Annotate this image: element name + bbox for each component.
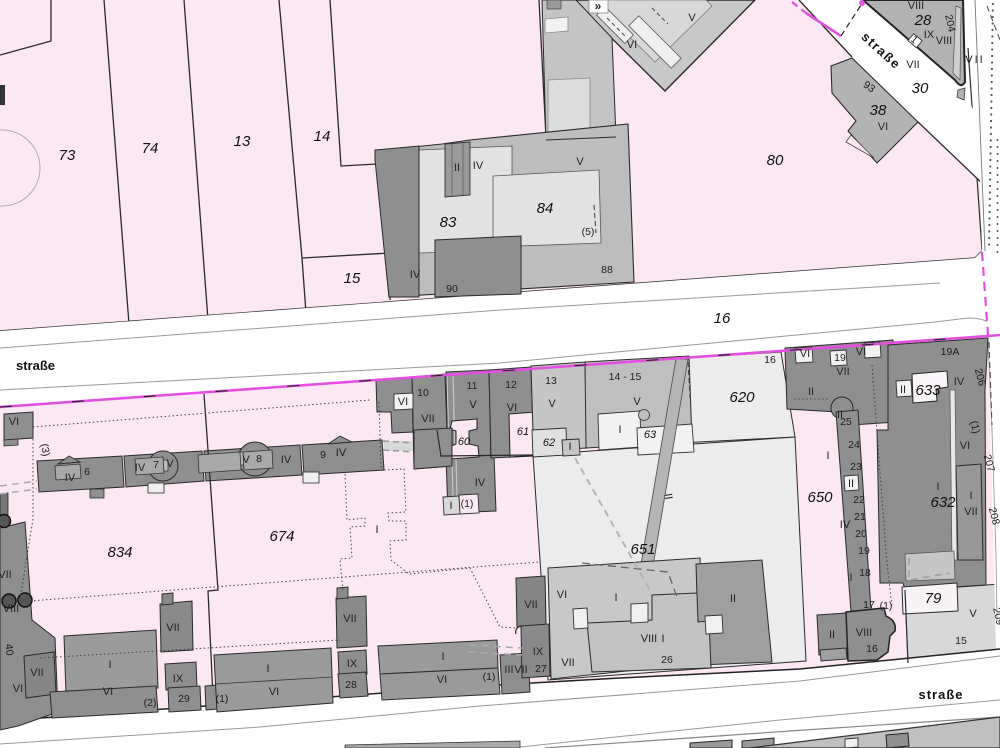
svg-text:VII: VII <box>524 599 537 611</box>
svg-text:19: 19 <box>834 352 846 364</box>
svg-text:13: 13 <box>545 375 557 387</box>
svg-text:63: 63 <box>644 429 657 441</box>
svg-text:10: 10 <box>417 387 429 399</box>
svg-text:80: 80 <box>767 152 784 169</box>
svg-text:20: 20 <box>855 528 867 540</box>
svg-text:VIII: VIII <box>3 603 20 615</box>
svg-text:15: 15 <box>955 635 967 647</box>
svg-text:(2): (2) <box>144 697 157 709</box>
svg-text:650: 650 <box>807 489 833 506</box>
svg-text:II: II <box>808 386 814 398</box>
svg-text:26: 26 <box>661 654 673 666</box>
svg-text:17: 17 <box>863 599 875 611</box>
svg-text:IV: IV <box>473 160 484 172</box>
svg-text:straße: straße <box>16 358 55 373</box>
svg-text:I: I <box>449 500 452 512</box>
svg-text:IX: IX <box>173 673 184 685</box>
svg-text:IX: IX <box>533 646 544 658</box>
svg-text:V: V <box>166 458 174 470</box>
svg-text:(1): (1) <box>461 498 474 510</box>
svg-text:»: » <box>595 0 602 13</box>
svg-text:III: III <box>504 664 513 676</box>
svg-text:83: 83 <box>440 214 457 231</box>
svg-text:II: II <box>848 478 854 490</box>
svg-text:84: 84 <box>537 200 554 217</box>
svg-text:I: I <box>849 572 852 584</box>
svg-text:6: 6 <box>84 466 90 478</box>
svg-text:651: 651 <box>630 541 655 558</box>
svg-text:V: V <box>576 156 584 168</box>
svg-text:11: 11 <box>467 380 478 392</box>
svg-text:IV: IV <box>336 447 347 459</box>
svg-text:VI: VI <box>437 674 447 686</box>
svg-text:I: I <box>969 490 972 502</box>
svg-text:22: 22 <box>853 494 865 506</box>
svg-text:79: 79 <box>925 590 942 607</box>
svg-text:834: 834 <box>107 544 132 561</box>
svg-text:V: V <box>969 608 977 620</box>
svg-text:(3): (3) <box>38 443 52 458</box>
svg-text:(1): (1) <box>483 671 496 683</box>
svg-text:VIII: VIII <box>936 35 953 47</box>
svg-text:I: I <box>661 633 664 645</box>
svg-text:VIII: VIII <box>908 0 925 12</box>
svg-text:633: 633 <box>915 382 941 399</box>
svg-text:VI: VI <box>960 440 970 452</box>
svg-text:IV: IV <box>65 472 76 484</box>
svg-text:VI: VI <box>878 121 888 133</box>
svg-text:II: II <box>454 162 460 174</box>
svg-text:VII: VII <box>965 54 984 66</box>
svg-text:VII: VII <box>906 59 919 71</box>
svg-text:674: 674 <box>269 528 294 545</box>
svg-text:VII: VII <box>514 664 527 676</box>
svg-text:62: 62 <box>543 437 555 449</box>
svg-text:VI: VI <box>398 396 408 408</box>
svg-text:VIII: VIII <box>641 633 658 645</box>
svg-text:I: I <box>375 524 378 536</box>
svg-text:VI: VI <box>103 686 113 698</box>
svg-text:12: 12 <box>505 379 517 391</box>
svg-text:14: 14 <box>314 128 331 145</box>
svg-text:VIII: VIII <box>856 627 873 639</box>
svg-text:13: 13 <box>234 133 251 150</box>
svg-text:40: 40 <box>3 643 16 656</box>
svg-text:II: II <box>730 593 736 605</box>
svg-text:I: I <box>266 663 269 675</box>
svg-text:IV: IV <box>410 269 421 281</box>
svg-text:(1): (1) <box>216 693 229 705</box>
svg-text:IV: IV <box>281 454 292 466</box>
svg-text:VII: VII <box>343 613 356 625</box>
svg-text:II: II <box>900 384 906 396</box>
svg-text:IV: IV <box>135 462 146 474</box>
svg-text:V: V <box>242 454 250 466</box>
svg-text:II: II <box>829 629 835 641</box>
svg-text:(5): (5) <box>582 226 595 238</box>
svg-text:VII: VII <box>30 667 43 679</box>
svg-text:15: 15 <box>344 270 361 287</box>
svg-text:VI: VI <box>800 348 810 360</box>
svg-text:IV: IV <box>954 376 965 388</box>
svg-text:(1): (1) <box>880 600 893 612</box>
svg-text:14 - 15: 14 - 15 <box>609 371 642 383</box>
svg-text:V: V <box>688 12 696 24</box>
svg-text:I: I <box>618 424 621 436</box>
svg-text:620: 620 <box>729 389 755 406</box>
svg-text:I: I <box>614 592 617 604</box>
svg-text:16: 16 <box>764 354 776 366</box>
svg-text:16: 16 <box>866 643 878 655</box>
svg-text:18: 18 <box>859 567 871 579</box>
svg-text:VII: VII <box>421 413 434 425</box>
svg-text:VI: VI <box>269 686 279 698</box>
svg-text:29: 29 <box>178 693 190 705</box>
svg-text:7: 7 <box>153 459 159 471</box>
svg-text:straße: straße <box>918 687 963 702</box>
svg-text:27: 27 <box>535 663 547 675</box>
svg-text:24: 24 <box>848 439 860 451</box>
svg-text:II: II <box>837 409 843 421</box>
svg-text:19: 19 <box>858 545 870 557</box>
svg-text:I: I <box>568 441 571 453</box>
svg-text:74: 74 <box>142 140 159 157</box>
svg-text:VII: VII <box>0 569 12 581</box>
svg-text:V: V <box>633 396 641 408</box>
svg-text:IX: IX <box>347 658 358 670</box>
svg-text:21: 21 <box>854 511 866 523</box>
svg-text:IV: IV <box>840 519 851 531</box>
svg-text:IV: IV <box>475 477 486 489</box>
svg-text:I: I <box>826 450 829 462</box>
svg-text:I: I <box>108 659 111 671</box>
svg-text:60: 60 <box>458 436 471 448</box>
svg-text:V: V <box>548 398 556 410</box>
svg-text:16: 16 <box>714 310 731 327</box>
svg-text:I: I <box>936 481 939 493</box>
svg-text:88: 88 <box>601 264 613 276</box>
svg-text:61: 61 <box>517 426 529 438</box>
svg-text:30: 30 <box>912 80 929 97</box>
svg-text:73: 73 <box>59 147 76 164</box>
svg-text:VII: VII <box>836 366 849 378</box>
svg-text:IX: IX <box>924 29 935 41</box>
svg-text:VI: VI <box>13 683 23 695</box>
svg-text:632: 632 <box>930 494 956 511</box>
svg-text:90: 90 <box>446 283 458 295</box>
svg-text:38: 38 <box>870 102 887 119</box>
svg-text:8: 8 <box>256 453 262 465</box>
svg-text:VII: VII <box>964 506 977 518</box>
svg-text:VII: VII <box>561 657 574 669</box>
svg-text:VII: VII <box>166 622 179 634</box>
svg-text:VI: VI <box>9 416 19 428</box>
svg-text:28: 28 <box>914 12 932 29</box>
svg-text:VI: VI <box>856 346 866 358</box>
svg-text:9: 9 <box>320 449 326 461</box>
svg-text:19A: 19A <box>941 346 960 358</box>
svg-text:VI: VI <box>557 589 567 601</box>
svg-text:I: I <box>441 651 444 663</box>
svg-text:V: V <box>469 399 477 411</box>
svg-text:VI: VI <box>627 39 637 51</box>
svg-text:23: 23 <box>850 461 862 473</box>
svg-text:28: 28 <box>345 679 357 691</box>
svg-text:VI: VI <box>507 402 517 414</box>
